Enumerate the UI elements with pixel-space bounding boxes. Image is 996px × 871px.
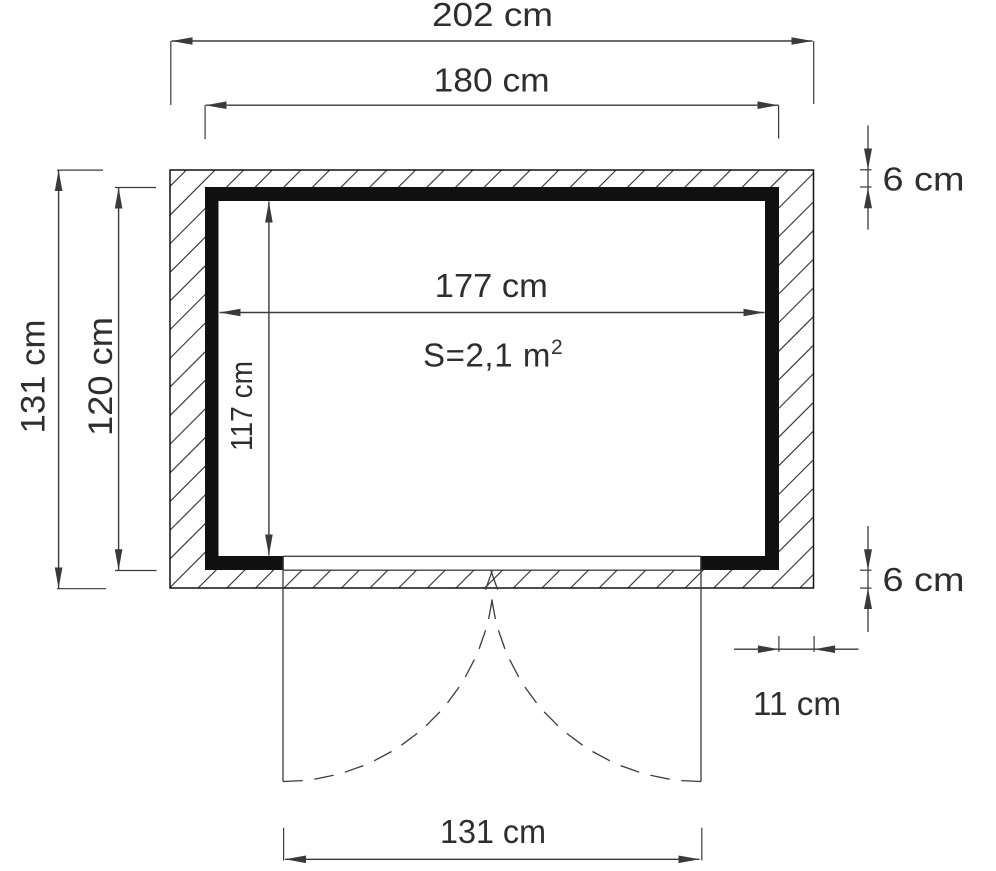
svg-text:131 cm: 131 cm — [440, 813, 546, 850]
svg-text:180 cm: 180 cm — [434, 61, 550, 98]
svg-text:6 cm: 6 cm — [883, 161, 965, 198]
svg-text:S=2,1 m2: S=2,1 m2 — [423, 336, 563, 374]
svg-text:6 cm: 6 cm — [883, 561, 965, 598]
svg-text:202 cm: 202 cm — [432, 0, 553, 33]
svg-text:120 cm: 120 cm — [82, 317, 120, 436]
svg-text:11 cm: 11 cm — [753, 685, 841, 722]
svg-text:177 cm: 177 cm — [435, 267, 548, 304]
svg-text:117 cm: 117 cm — [224, 361, 259, 451]
svg-text:131 cm: 131 cm — [15, 320, 53, 434]
